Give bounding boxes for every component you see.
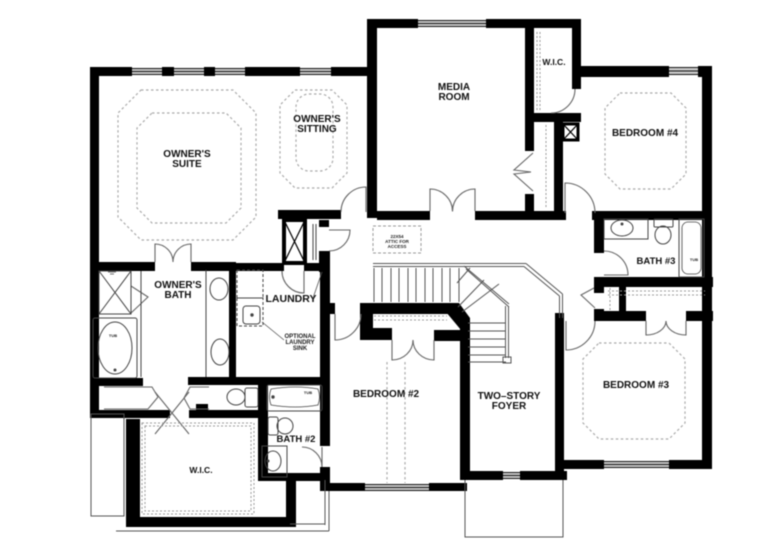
svg-text:BATH: BATH — [164, 290, 191, 301]
svg-text:TUB: TUB — [109, 333, 117, 338]
svg-text:W.I.C.: W.I.C. — [542, 57, 565, 67]
svg-text:BEDROOM #2: BEDROOM #2 — [353, 389, 420, 400]
svg-text:BATH #2: BATH #2 — [277, 434, 316, 445]
svg-text:BEDROOM #4: BEDROOM #4 — [612, 128, 679, 139]
svg-text:SINK: SINK — [293, 346, 308, 352]
svg-text:ACCESS: ACCESS — [388, 244, 407, 249]
svg-text:BEDROOM #3: BEDROOM #3 — [603, 380, 670, 391]
svg-text:ROOM: ROOM — [438, 92, 469, 103]
svg-text:SITTING: SITTING — [297, 124, 337, 135]
svg-text:SUITE: SUITE — [172, 159, 202, 170]
svg-text:TUB: TUB — [304, 390, 312, 395]
svg-text:W.I.C.: W.I.C. — [189, 465, 212, 475]
svg-text:LAUNDRY: LAUNDRY — [266, 293, 317, 305]
svg-text:FOYER: FOYER — [492, 401, 527, 412]
svg-text:TUB: TUB — [690, 257, 698, 262]
svg-text:BATH #3: BATH #3 — [637, 256, 676, 267]
